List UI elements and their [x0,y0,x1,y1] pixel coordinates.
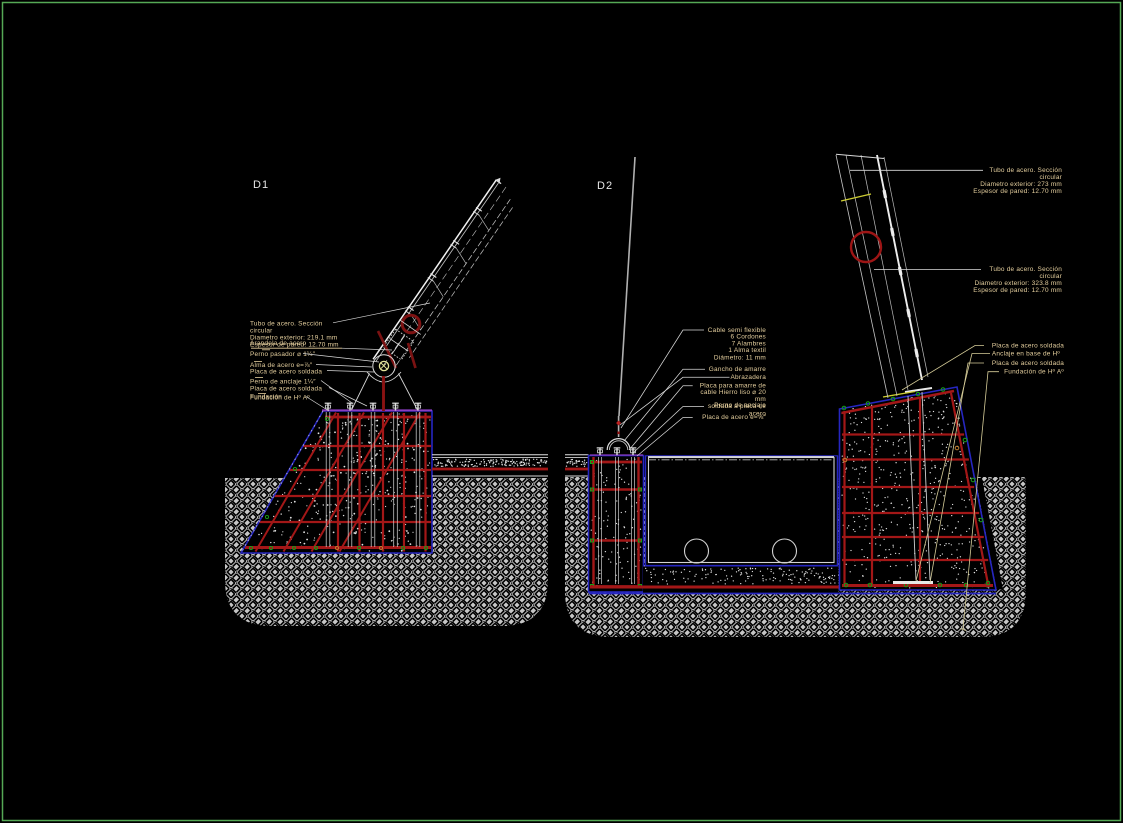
svg-text:circular: circular [1039,174,1062,181]
svg-text:Placa de acero e=⅝″: Placa de acero e=⅝″ [702,414,766,421]
svg-text:Espesor de pared: 12.70 mm: Espesor de pared: 12.70 mm [973,287,1062,294]
svg-text:Tubo de acero. Sección: Tubo de acero. Sección [989,266,1062,273]
svg-text:Arandela de acero: Arandela de acero [250,340,307,347]
svg-text:D2: D2 [597,180,613,192]
svg-text:Diámetro: 11 mm: Diámetro: 11 mm [714,354,766,361]
svg-text:Diametro exterior: 323.8 mm: Diametro exterior: 323.8 mm [974,280,1062,287]
svg-text:Fundación: Fundación [250,393,282,400]
svg-text:Placa de acero soldada: Placa de acero soldada [992,360,1064,367]
svg-text:Placa de acero soldada: Placa de acero soldada [250,369,322,376]
svg-text:Perno de anclaje 1¼″: Perno de anclaje 1¼″ [250,379,316,386]
svg-text:Fundación de Hº Aº: Fundación de Hº Aº [1004,369,1064,376]
svg-text:Tubo de acero. Sección: Tubo de acero. Sección [250,321,323,328]
svg-text:Abrazadera: Abrazadera [731,374,767,381]
svg-text:Placa de acero soldada: Placa de acero soldada [992,342,1064,349]
svg-text:Placa de acero soldada: Placa de acero soldada [250,386,322,393]
svg-text:D1: D1 [253,179,269,191]
svg-text:Anclaje en base de Hº: Anclaje en base de Hº [992,351,1061,358]
svg-text:Gancho de amarre: Gancho de amarre [709,366,766,373]
svg-text:Espesor de pared: 12.70 mm: Espesor de pared: 12.70 mm [973,188,1062,195]
svg-text:Perno de anclaje: Perno de anclaje [714,402,766,409]
svg-text:circular: circular [250,328,273,335]
svg-text:Perno pasador ⌀ 1¼″: Perno pasador ⌀ 1¼″ [250,351,316,358]
svg-text:1 Alma textil: 1 Alma textil [728,347,766,354]
